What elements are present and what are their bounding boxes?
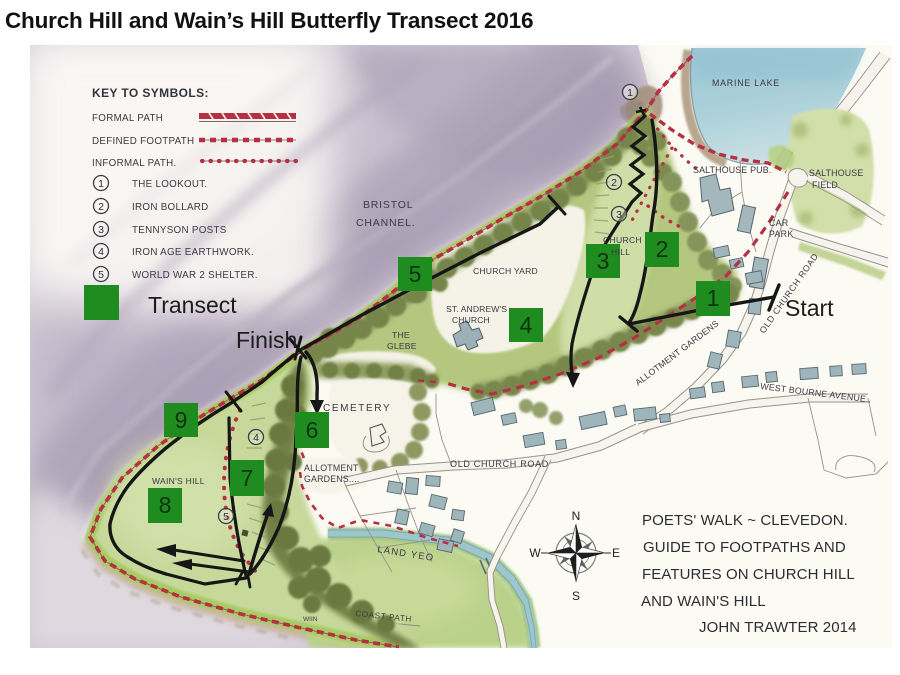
svg-text:Start: Start (785, 295, 834, 321)
svg-text:CHURCH: CHURCH (603, 235, 642, 245)
svg-text:ALLOTMENT: ALLOTMENT (304, 463, 359, 473)
svg-text:6: 6 (306, 417, 319, 443)
svg-text:Church Hill and Wain’s Hill Bu: Church Hill and Wain’s Hill Butterfly Tr… (5, 8, 533, 33)
svg-text:KEY TO SYMBOLS:: KEY TO SYMBOLS: (92, 86, 209, 100)
svg-text:5: 5 (409, 261, 422, 287)
svg-text:4: 4 (98, 246, 104, 258)
svg-text:CHANNEL.: CHANNEL. (356, 217, 416, 229)
svg-text:TENNYSON POSTS: TENNYSON POSTS (132, 225, 227, 236)
svg-text:9: 9 (175, 407, 188, 433)
svg-text:PARK: PARK (769, 229, 794, 239)
svg-text:2: 2 (98, 201, 104, 213)
svg-text:3: 3 (597, 248, 610, 274)
svg-text:HILL: HILL (611, 247, 630, 257)
svg-text:2: 2 (656, 236, 669, 262)
svg-text:MARINE LAKE: MARINE LAKE (712, 78, 780, 88)
svg-text:Transect: Transect (148, 292, 237, 318)
svg-text:4: 4 (520, 312, 533, 338)
svg-text:INFORMAL PATH.: INFORMAL PATH. (92, 158, 177, 169)
svg-text:SALTHOUSE PUB.: SALTHOUSE PUB. (693, 165, 771, 175)
svg-text:7: 7 (241, 465, 254, 491)
svg-text:5: 5 (98, 269, 104, 281)
svg-text:FEATURES ON CHURCH HILL: FEATURES ON CHURCH HILL (642, 566, 855, 583)
svg-text:SALTHOUSE: SALTHOUSE (809, 168, 863, 178)
svg-text:8: 8 (159, 492, 172, 518)
svg-text:FIELD.: FIELD. (812, 180, 841, 190)
svg-text:WORLD WAR 2 SHELTER.: WORLD WAR 2 SHELTER. (132, 270, 258, 281)
svg-text:WIIN: WIIN (303, 616, 318, 623)
svg-text:CEMETERY: CEMETERY (323, 403, 391, 414)
svg-text:4: 4 (253, 432, 259, 444)
svg-text:JOHN TRAWTER 2014: JOHN TRAWTER 2014 (699, 619, 857, 636)
svg-text:CHURCH: CHURCH (452, 315, 490, 325)
svg-text:AND WAIN'S HILL: AND WAIN'S HILL (641, 593, 766, 610)
svg-text:IRON AGE EARTHWORK.: IRON AGE EARTHWORK. (132, 247, 254, 258)
svg-text:ST. ANDREW'S: ST. ANDREW'S (446, 304, 507, 314)
svg-text:S: S (572, 589, 580, 603)
svg-text:N: N (572, 509, 581, 523)
svg-text:IRON BOLLARD: IRON BOLLARD (132, 202, 209, 213)
svg-text:2: 2 (611, 177, 617, 189)
svg-text:BRISTOL: BRISTOL (363, 199, 413, 211)
svg-text:1: 1 (98, 178, 104, 190)
svg-text:OLD CHURCH ROAD: OLD CHURCH ROAD (450, 459, 549, 469)
svg-text:E: E (612, 546, 620, 560)
svg-text:CAR: CAR (769, 218, 788, 228)
svg-text:WAIN'S HILL: WAIN'S HILL (152, 476, 205, 486)
svg-text:3: 3 (98, 224, 104, 236)
svg-text:GARDENS....: GARDENS.... (304, 474, 359, 484)
svg-text:THE: THE (392, 330, 410, 340)
svg-text:FORMAL PATH: FORMAL PATH (92, 113, 163, 124)
svg-text:THE LOOKOUT.: THE LOOKOUT. (132, 179, 207, 190)
svg-text:3: 3 (616, 209, 622, 221)
svg-text:Finish: Finish (236, 327, 297, 353)
svg-text:DEFINED FOOTPATH: DEFINED FOOTPATH (92, 136, 194, 147)
svg-text:CHURCH YARD: CHURCH YARD (473, 266, 538, 276)
svg-text:5: 5 (223, 511, 229, 523)
svg-text:POETS' WALK ~ CLEVEDON.: POETS' WALK ~ CLEVEDON. (642, 512, 848, 529)
svg-text:GUIDE TO FOOTPATHS AND: GUIDE TO FOOTPATHS AND (643, 539, 846, 556)
svg-text:W: W (529, 546, 541, 560)
svg-text:1: 1 (707, 285, 720, 311)
svg-text:GLEBE: GLEBE (387, 341, 417, 351)
svg-text:1: 1 (627, 87, 633, 99)
